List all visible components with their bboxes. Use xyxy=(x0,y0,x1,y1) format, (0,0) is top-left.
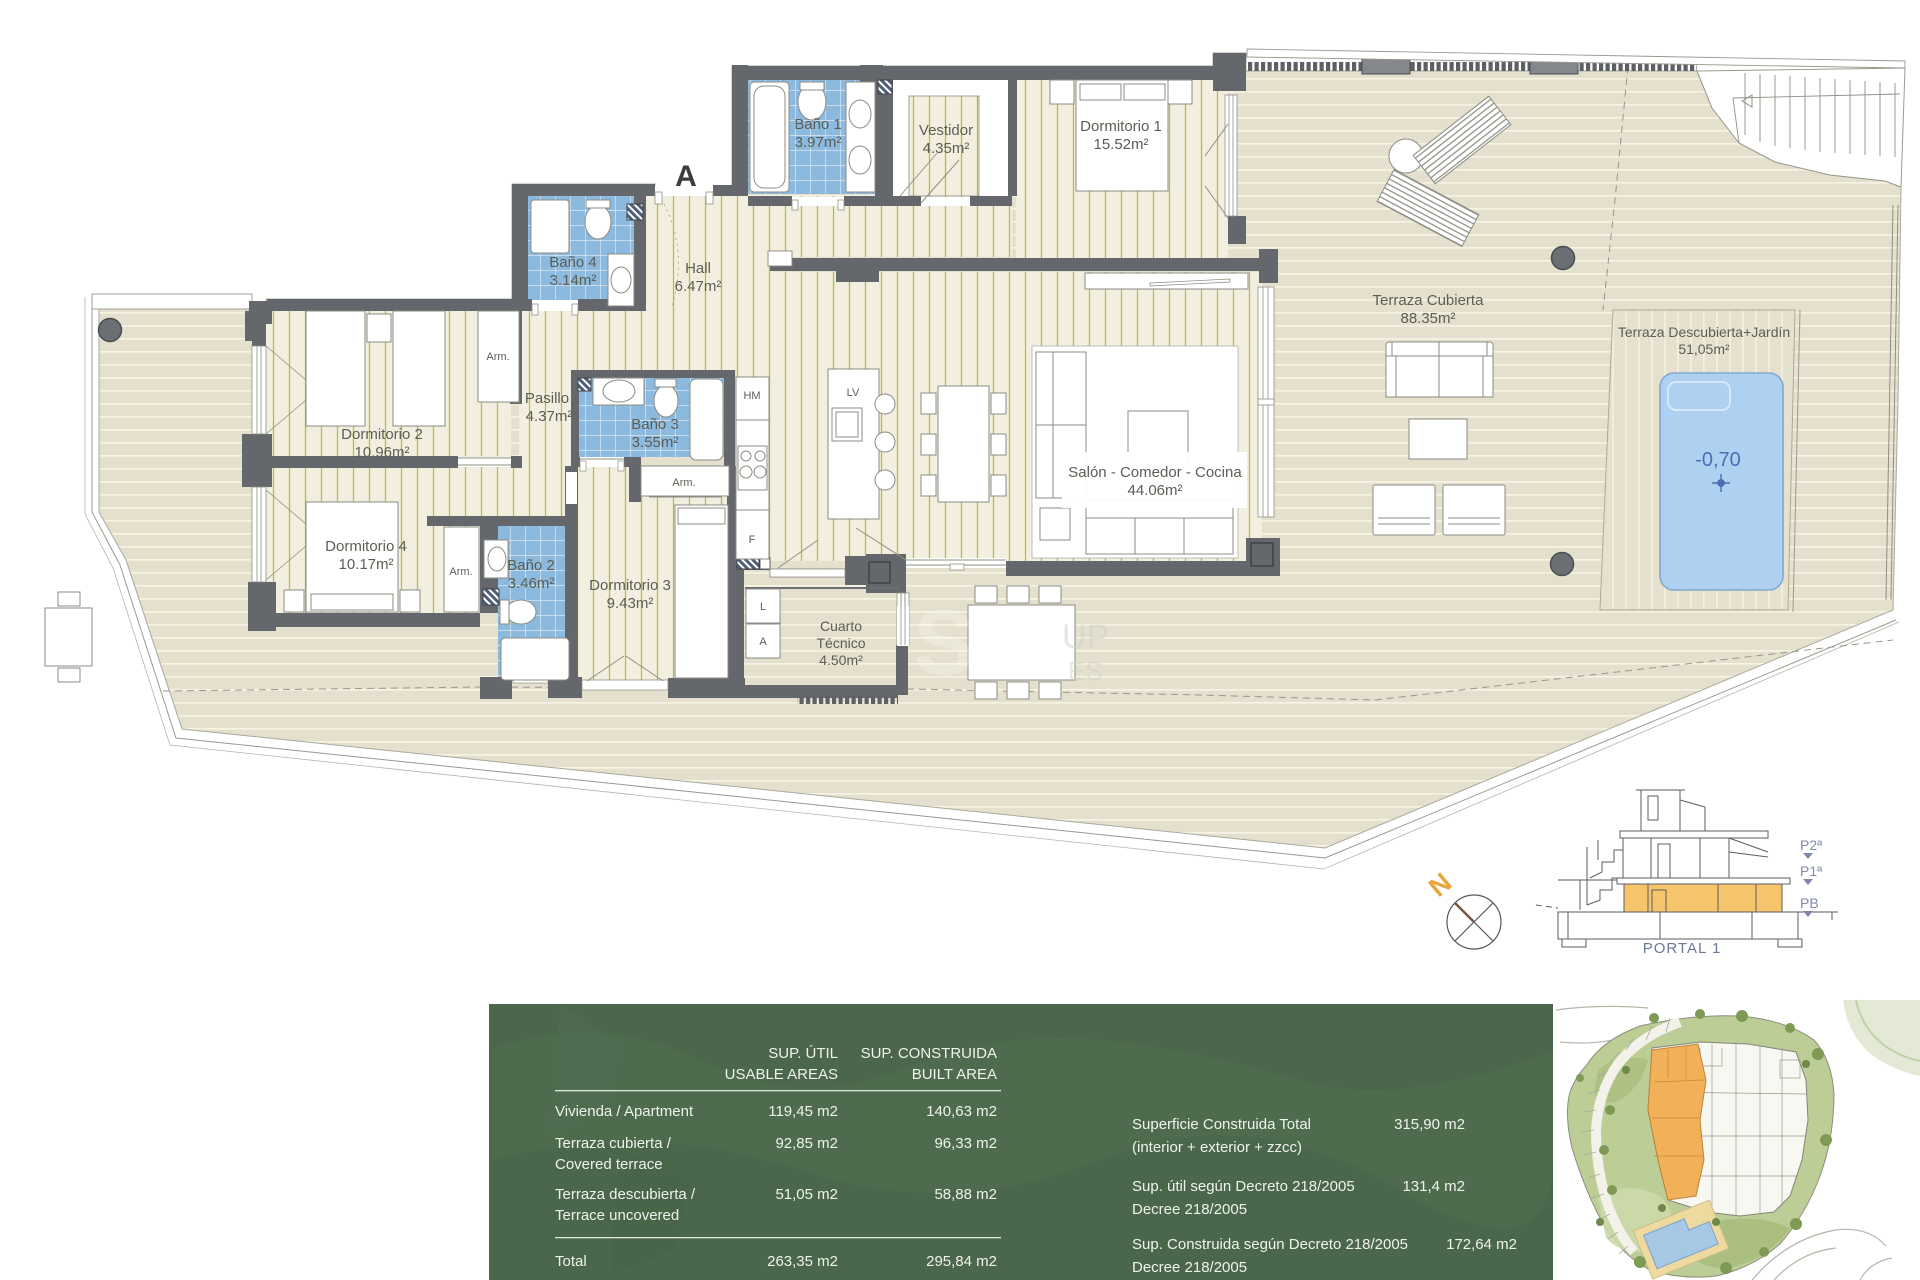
svg-text:Dormitorio 1: Dormitorio 1 xyxy=(1080,118,1162,135)
svg-text:Baño 4: Baño 4 xyxy=(549,254,597,271)
svg-text:Terraza Cubierta: Terraza Cubierta xyxy=(1373,292,1485,309)
svg-text:ES: ES xyxy=(1068,656,1103,686)
svg-text:3.55m²: 3.55m² xyxy=(632,434,679,451)
svg-text:Dormitorio 4: Dormitorio 4 xyxy=(325,538,407,555)
svg-text:SUP. CONSTRUIDA: SUP. CONSTRUIDA xyxy=(861,1045,997,1062)
svg-text:Terraza cubierta /: Terraza cubierta / xyxy=(555,1135,672,1152)
svg-text:119,45 m2: 119,45 m2 xyxy=(768,1103,838,1120)
svg-text:BUILT AREA: BUILT AREA xyxy=(912,1066,997,1083)
svg-text:Baño 1: Baño 1 xyxy=(794,116,842,133)
svg-text:LV: LV xyxy=(847,387,860,399)
svg-text:3.14m²: 3.14m² xyxy=(550,272,597,289)
svg-text:Covered terrace: Covered terrace xyxy=(555,1156,663,1173)
svg-text:Hall: Hall xyxy=(685,260,711,277)
svg-text:Terraza descubierta /: Terraza descubierta / xyxy=(555,1186,696,1203)
svg-text:Total: Total xyxy=(555,1253,587,1270)
svg-text:Superficie Construida Total: Superficie Construida Total xyxy=(1132,1116,1311,1133)
svg-text:Terraza Descubierta+Jardín: Terraza Descubierta+Jardín xyxy=(1618,324,1790,340)
svg-text:58,88 m2: 58,88 m2 xyxy=(934,1186,997,1203)
svg-text:UP: UP xyxy=(1062,618,1109,656)
svg-text:PORTAL 1: PORTAL 1 xyxy=(1643,940,1722,957)
svg-text:USABLE AREAS: USABLE AREAS xyxy=(725,1066,838,1083)
svg-text:Arm.: Arm. xyxy=(449,566,472,578)
svg-text:15.52m²: 15.52m² xyxy=(1093,136,1148,153)
svg-text:F: F xyxy=(749,534,756,546)
svg-text:172,64 m2: 172,64 m2 xyxy=(1446,1236,1517,1253)
svg-text:10.96m²: 10.96m² xyxy=(354,444,409,461)
svg-text:HM: HM xyxy=(743,390,760,402)
svg-text:Pasillo: Pasillo xyxy=(525,390,569,407)
svg-text:9.43m²: 9.43m² xyxy=(607,595,654,612)
svg-text:92,85 m2: 92,85 m2 xyxy=(775,1135,838,1152)
svg-text:Baño 2: Baño 2 xyxy=(507,557,555,574)
svg-text:(interior + exterior + zzcc): (interior + exterior + zzcc) xyxy=(1132,1139,1302,1156)
svg-text:PB: PB xyxy=(1800,895,1819,911)
svg-text:Arm.: Arm. xyxy=(672,477,695,489)
svg-text:131,4 m2: 131,4 m2 xyxy=(1402,1178,1465,1195)
svg-text:Salón - Comedor - Cocina: Salón - Comedor - Cocina xyxy=(1068,464,1242,481)
svg-text:140,63 m2: 140,63 m2 xyxy=(926,1103,997,1120)
svg-text:P1ª: P1ª xyxy=(1800,863,1823,879)
svg-text:6.47m²: 6.47m² xyxy=(675,278,722,295)
svg-text:Decree 218/2005: Decree 218/2005 xyxy=(1132,1201,1247,1218)
svg-text:Sup. Construida según Decreto: Sup. Construida según Decreto 218/2005 xyxy=(1132,1236,1408,1253)
svg-text:Arm.: Arm. xyxy=(486,351,509,363)
svg-text:Terrace uncovered: Terrace uncovered xyxy=(555,1207,679,1224)
svg-text:Cuarto: Cuarto xyxy=(820,618,862,634)
svg-text:P2ª: P2ª xyxy=(1800,837,1823,853)
svg-text:51,05 m2: 51,05 m2 xyxy=(775,1186,838,1203)
svg-text:Dormitorio 2: Dormitorio 2 xyxy=(341,426,423,443)
svg-text:10.17m²: 10.17m² xyxy=(338,556,393,573)
svg-text:44.06m²: 44.06m² xyxy=(1127,482,1182,499)
svg-text:Vivienda / Apartment: Vivienda / Apartment xyxy=(555,1103,694,1120)
svg-text:Baño 3: Baño 3 xyxy=(631,416,679,433)
svg-text:4.35m²: 4.35m² xyxy=(923,140,970,157)
svg-text:Técnico: Técnico xyxy=(816,635,865,651)
svg-text:-0,70: -0,70 xyxy=(1695,449,1741,471)
svg-text:A: A xyxy=(675,160,697,193)
svg-text:4.37m²: 4.37m² xyxy=(526,408,573,425)
svg-text:L: L xyxy=(760,601,766,613)
svg-text:SUP. ÚTIL: SUP. ÚTIL xyxy=(768,1045,838,1062)
svg-text:3.97m²: 3.97m² xyxy=(795,134,842,151)
svg-text:Sup. útil según Decreto 218/20: Sup. útil según Decreto 218/2005 xyxy=(1132,1178,1355,1195)
svg-text:A: A xyxy=(759,636,767,648)
svg-text:295,84 m2: 295,84 m2 xyxy=(926,1253,997,1270)
svg-text:Dormitorio 3: Dormitorio 3 xyxy=(589,577,671,594)
svg-text:51,05m²: 51,05m² xyxy=(1678,341,1730,357)
svg-text:3.46m²: 3.46m² xyxy=(508,575,555,592)
svg-text:315,90 m2: 315,90 m2 xyxy=(1394,1116,1465,1133)
svg-text:4.50m²: 4.50m² xyxy=(819,652,863,668)
svg-text:96,33 m2: 96,33 m2 xyxy=(934,1135,997,1152)
svg-text:263,35 m2: 263,35 m2 xyxy=(767,1253,838,1270)
svg-text:Vestidor: Vestidor xyxy=(919,122,973,139)
svg-text:88.35m²: 88.35m² xyxy=(1400,310,1455,327)
svg-text:Decree 218/2005: Decree 218/2005 xyxy=(1132,1259,1247,1276)
